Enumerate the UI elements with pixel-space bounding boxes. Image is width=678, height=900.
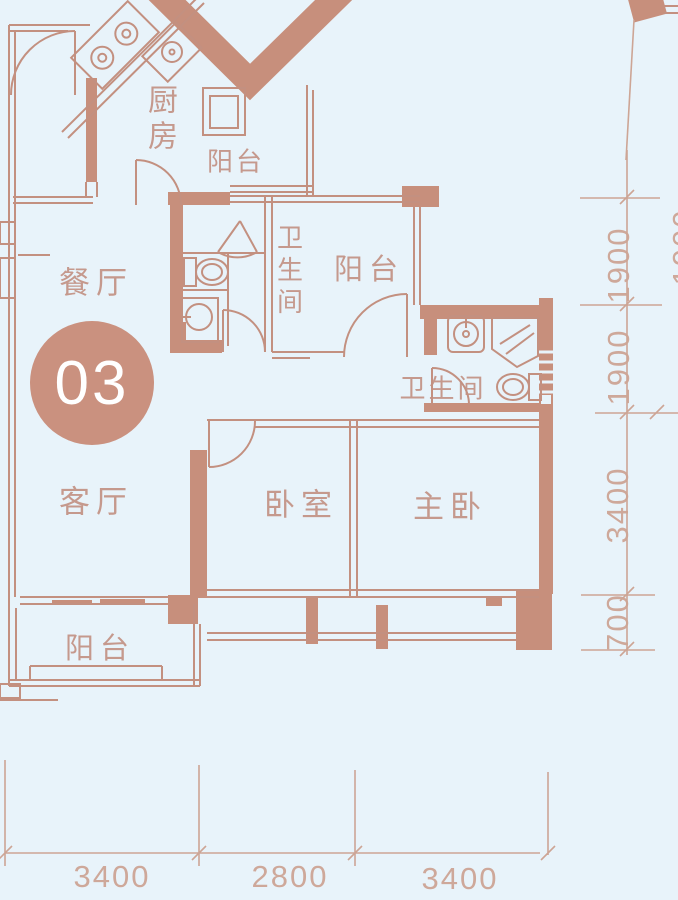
bathroom1 — [182, 196, 272, 352]
dim-bottom-3400a: 3400 — [74, 859, 151, 895]
dim-right-700: 700 — [600, 593, 636, 651]
label-living: 客厅 — [59, 477, 133, 522]
corner-wall-block — [627, 0, 667, 22]
dim-bottom-3400b: 3400 — [422, 861, 499, 897]
label-kitchen-balcony: 阳台 — [207, 142, 265, 179]
label-master-bedroom: 主卧 — [413, 482, 487, 527]
corner-block — [516, 590, 552, 650]
unit-number: 03 — [55, 348, 130, 419]
label-bathroom-ensuite: 卫生间 — [399, 369, 486, 406]
stove-icon — [71, 1, 159, 89]
bedroom-door-arc — [209, 421, 255, 467]
label-bedroom: 卧室 — [264, 480, 338, 525]
master-right-wall — [539, 414, 553, 594]
entry-door-arc — [11, 31, 75, 95]
washbasin-icon — [448, 316, 484, 352]
dim-right-partial: 1900 — [666, 209, 678, 286]
label-rear-balcony: 阳台 — [334, 246, 404, 288]
washing-machine-icon — [203, 88, 245, 135]
shower-icon — [218, 221, 257, 257]
floor-plan: 03 厨房 阳台 餐厅 卫生间 阳台 卫生间 客厅 卧室 主卧 阳台 1900 … — [0, 0, 678, 900]
toilet-icon — [497, 374, 541, 400]
washbasin-icon — [182, 298, 218, 342]
floor-plan-drawing — [0, 0, 678, 900]
bathroom1-door-arc — [223, 310, 265, 352]
shower-icon — [492, 318, 538, 367]
label-kitchen: 厨房 — [137, 84, 181, 156]
label-bathroom-shared: 卫生间 — [271, 224, 308, 320]
balcony-door-arc — [344, 294, 407, 357]
dim-right-1900b: 1900 — [601, 329, 637, 406]
ensuite-top-wall — [420, 305, 553, 319]
toilet-icon — [184, 258, 228, 286]
label-dining: 餐厅 — [59, 258, 133, 303]
unit-badge: 03 — [30, 321, 154, 445]
dim-right-3400: 3400 — [600, 467, 636, 544]
label-front-balcony: 阳台 — [65, 625, 135, 667]
bedroom-wall — [190, 450, 207, 598]
entry-wall — [86, 78, 97, 182]
dim-bottom-2800: 2800 — [252, 859, 329, 895]
dim-right-1900a: 1900 — [601, 227, 637, 304]
